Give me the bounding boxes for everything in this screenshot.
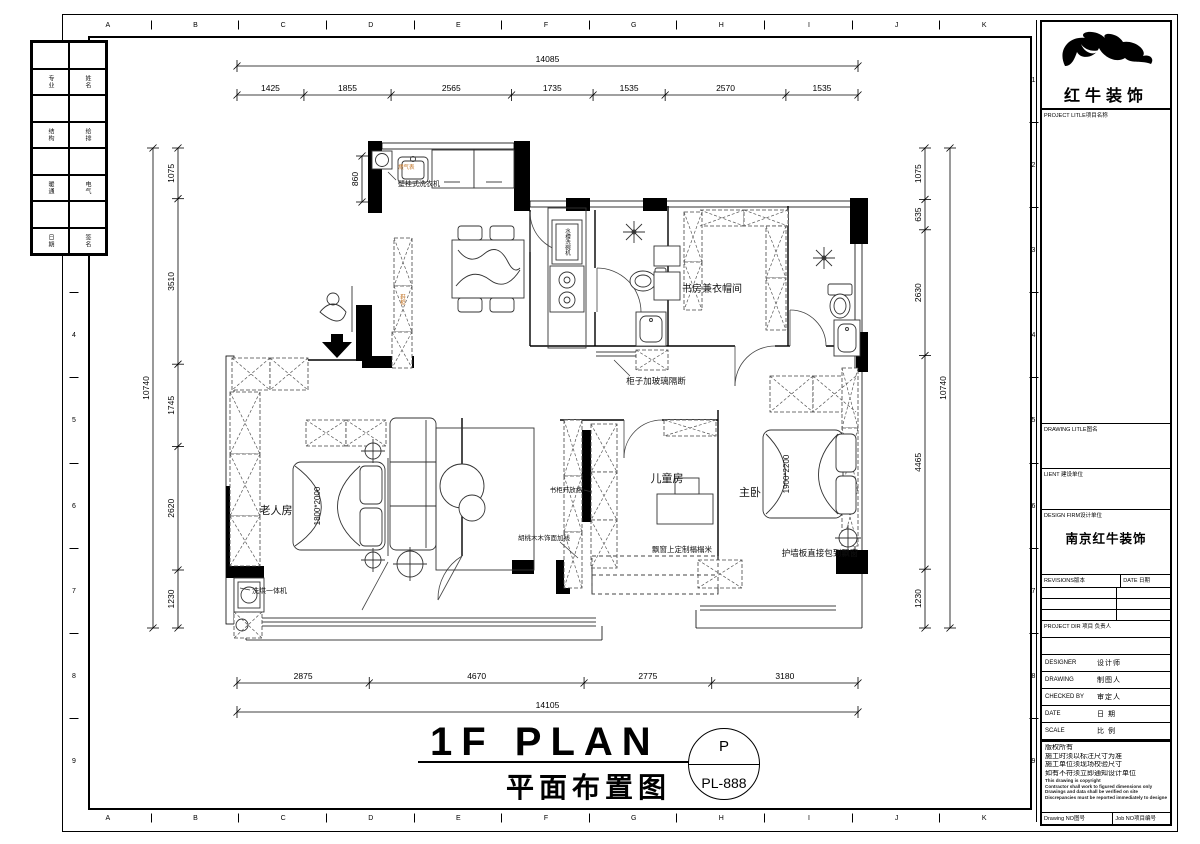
grid-letter: F [502,808,590,828]
dim-chain-top-total: 14085 [234,54,862,72]
dim-text: 635 [913,207,923,221]
floor-plan: 老人房 儿童房 主卧 书房兼衣帽间 壁挂式洗衣机 柜子加玻璃隔断 护墙板直接包到… [88,36,1028,808]
grid-number: 7 [63,549,85,634]
company-logo-section: 红牛装饰 [1042,22,1170,110]
grid-letter: C [239,15,327,35]
dim-chain-left-segments: 10753510174526201230 [166,145,184,632]
dim-chain-right-segments: 1075635263044651230 [913,145,931,632]
bed-size-elder: 1800*2000 [313,486,322,525]
sheet-number-bubble: P PL-888 [688,728,760,800]
checked-by-label-cn: 审定人 [1097,692,1121,702]
dim-text: 860 [350,172,360,186]
dim-text: 2565 [442,83,461,93]
sheet-letter: P [689,729,759,764]
note-line-cn: 施工时须以标注尺寸为准 [1045,753,1167,762]
checked-by-label-en: CHECKED BY [1042,694,1097,700]
grid-number: 5 [63,378,85,463]
grid-letter: G [590,808,678,828]
dim-text: 10740 [938,376,948,400]
dim-text: 1735 [543,83,562,93]
designer-label-cn: 设计师 [1097,658,1121,668]
sheet-title-underline [418,761,690,763]
scale-label-en: SCALE [1042,728,1097,734]
blank-row [1042,638,1170,655]
dim-text: 1230 [913,589,923,608]
drawing-by-label-cn: 制图人 [1097,675,1121,685]
sheet-number: PL-888 [689,764,759,800]
design-firm-name: 南京红牛装饰 [1042,528,1170,547]
grid-letter: A [64,808,152,828]
dim-text: 1855 [338,83,357,93]
room-label-study: 书房兼衣帽间 [682,282,742,295]
grid-letter: G [590,15,678,35]
project-director-label: PROJECT DIR 项目 负责人 [1042,621,1170,631]
floor-lamp-icon [393,547,427,581]
dining-table [452,226,524,312]
rednew-logo-icon [1051,30,1161,82]
annotation-sink: 水槽洗碗机 [564,227,571,257]
dim-text: 1230 [166,589,176,608]
vanity-icon [834,320,860,356]
client-label: LIENT 建设单位 [1042,469,1170,479]
bathroom-master [813,247,860,356]
grid-numbers-right: 123456789 [1028,38,1039,804]
project-name-section: PROJECT LITLE项目名称 [1042,110,1170,424]
annotation-gas-meter: 燃气表 [398,163,415,171]
annotation-tatami: 飘窗上定制榻榻米 [652,544,712,554]
note-line-cn: 版权所有 [1045,744,1167,753]
signature-cell: 结构 [32,122,69,149]
room-label-elder: 老人房 [260,504,293,517]
project-director-row: PROJECT DIR 项目 负责人 [1042,621,1170,638]
grid-number: 2 [1028,123,1039,208]
dim-text: 2875 [294,671,313,681]
company-name: 红牛装饰 [1064,82,1148,106]
dim-text: 3510 [166,272,176,291]
annotation-washdry: 洗烘一体机 [252,586,287,595]
annotation-shoe-cabinet: 鞋柜 [399,293,406,307]
revisions-label: REVISIONS版本 [1042,575,1121,587]
date-label-cn: 日 期 [1097,709,1116,719]
glass-partition [596,352,636,356]
scale-label-cn: 比 例 [1097,726,1116,736]
annotation-bookshelf: 书柜开放格 [550,485,583,494]
dim-text: 1745 [166,396,176,415]
side-table [459,495,485,521]
room-label-master: 主卧 [739,486,761,499]
dim-text: 3180 [775,671,794,681]
grid-letters-bottom: ABCDEFGHIJK [64,808,1028,828]
dim-text: 2775 [638,671,657,681]
job-no-label: Job NO项目编号 [1113,813,1158,823]
dim-text: 2620 [166,499,176,518]
grid-number: 4 [1028,293,1039,378]
dim-text: 10740 [141,376,151,400]
project-label: PROJECT LITLE项目名称 [1042,110,1170,120]
scale-row: SCALE 比 例 [1042,723,1170,740]
grid-letter: A [64,15,152,35]
dim-text: 1075 [166,164,176,183]
grid-letter: C [239,808,327,828]
note-line-cn: 施工单位须现场校验尺寸 [1045,761,1167,770]
cabinet-hatches [230,210,858,638]
grid-number: 9 [1028,719,1039,804]
dim-chain-bottom-segments: 2875467027753180 [234,671,862,689]
signature-cell-empty [32,95,69,122]
signature-cell: 暖通 [32,175,69,202]
dim-text: 14105 [536,700,560,710]
designer-label-en: DESIGNER [1042,660,1097,666]
dim-text: 2570 [716,83,735,93]
note-line-en: Discrepancies must be reported immediate… [1045,795,1167,801]
design-firm-label: DESIGN FIRM设计单位 [1042,510,1170,520]
dim-text: 1425 [261,83,280,93]
grid-letter: F [502,15,590,35]
grid-letter: D [327,15,415,35]
grid-letter: K [940,808,1028,828]
bed-size-master: 1900*2200 [782,454,791,493]
grid-letter: H [677,808,765,828]
grid-letter: D [327,808,415,828]
dim-chain-left-total: 10740 [141,145,159,632]
grid-letter: J [853,808,941,828]
grid-letter: I [765,15,853,35]
sheet-title-cn: 平面布置图 [506,766,671,806]
annotation-washer: 壁挂式洗衣机 [398,179,440,188]
copyright-notes: 版权所有施工时须以标注尺寸为准施工单位须现场校验尺寸如有不符须立即通知设计单位 … [1042,740,1170,813]
title-block: 红牛装饰 PROJECT LITLE项目名称 DRAWING LITLE图名 L… [1040,20,1172,826]
drawing-no-label: Drawing NO图号 [1042,813,1112,823]
design-firm-section: DESIGN FIRM设计单位 南京红牛装饰 [1042,510,1170,575]
client-section: LIENT 建设单位 [1042,469,1170,510]
revisions-header: REVISIONS版本 DATE 日期 [1042,575,1170,588]
exhaust-fan-icon [813,247,835,269]
grid-number: 5 [1028,378,1039,463]
dim-text: 1535 [620,83,639,93]
grid-number: 8 [63,634,85,719]
annotation-cabinet-glass: 柜子加玻璃隔断 [626,376,686,386]
revision-row [1042,599,1170,610]
drawing-by-row: DRAWING 制图人 [1042,672,1170,689]
drawing-by-label-en: DRAWING [1042,677,1097,683]
grid-number: 9 [63,719,85,804]
designer-row: DESIGNER 设计师 [1042,655,1170,672]
elder-bed [293,439,388,572]
dim-text: 4670 [467,671,486,681]
grid-letter: I [765,808,853,828]
grid-letter: B [152,808,240,828]
annotation-walnut: 胡桃木木饰面加线 [518,533,571,542]
toilet-icon [828,284,852,318]
dim-chain-top-segments: 1425185525651735153525701535 [234,83,862,101]
grid-number: 6 [1028,464,1039,549]
study-desks [654,246,680,300]
annotation-wall-panel: 护墙板直接包到飘窗 [782,548,859,558]
grid-letter: B [152,15,240,35]
dim-text: 14085 [536,54,560,64]
grid-letter: E [415,808,503,828]
grid-letters-top: ABCDEFGHIJK [64,15,1028,35]
dim-chain-right-total: 10740 [938,145,956,632]
signature-cell: 日期 [32,228,69,255]
master-bed [763,430,861,551]
grid-letter: H [677,15,765,35]
signature-cell-empty [32,148,69,175]
grid-letter: J [853,15,941,35]
grid-number: 6 [63,464,85,549]
laundry-nook [372,150,514,188]
dim-text: 2630 [913,283,923,302]
bedside-light-icon [361,548,385,572]
signature-cell: 专业 [32,69,69,96]
desk [657,494,713,524]
revision-row [1042,610,1170,621]
grid-letter: K [940,15,1028,35]
signature-cell-empty [32,42,69,69]
entry-marker [320,286,352,358]
grid-number: 3 [1028,208,1039,293]
drawing-title-section: DRAWING LITLE图名 [1042,424,1170,469]
note-line-cn: 如有不符须立即通知设计单位 [1045,770,1167,779]
revision-row [1042,588,1170,599]
drawing-number-footer: Drawing NO图号 Job NO项目编号 [1042,813,1170,824]
dim-text: 1535 [812,83,831,93]
grid-number: 7 [1028,549,1039,634]
vanity-icon [636,312,666,346]
grid-number: 4 [63,293,85,378]
dim-text: 1075 [913,164,923,183]
grid-number: 1 [1028,38,1039,123]
dim-chain-860: 860 [350,153,368,206]
checked-by-row: CHECKED BY 审定人 [1042,689,1170,706]
sheet-title-en: 1F PLAN [430,720,660,765]
sofa [390,418,436,550]
grid-number: 8 [1028,634,1039,719]
entry-arrow-icon [322,334,352,358]
date-label-en: DATE [1042,711,1097,717]
signature-cell-empty [32,201,69,228]
room-label-child: 儿童房 [651,471,684,485]
grid-letter: E [415,15,503,35]
dim-chain-bottom-total: 14105 [234,700,862,718]
date-row: DATE 日 期 [1042,706,1170,723]
exhaust-fan-icon [623,221,645,243]
drawing-title-label: DRAWING LITLE图名 [1042,424,1170,434]
revisions-date-label: DATE 日期 [1121,575,1179,587]
dim-text: 4465 [913,453,923,472]
